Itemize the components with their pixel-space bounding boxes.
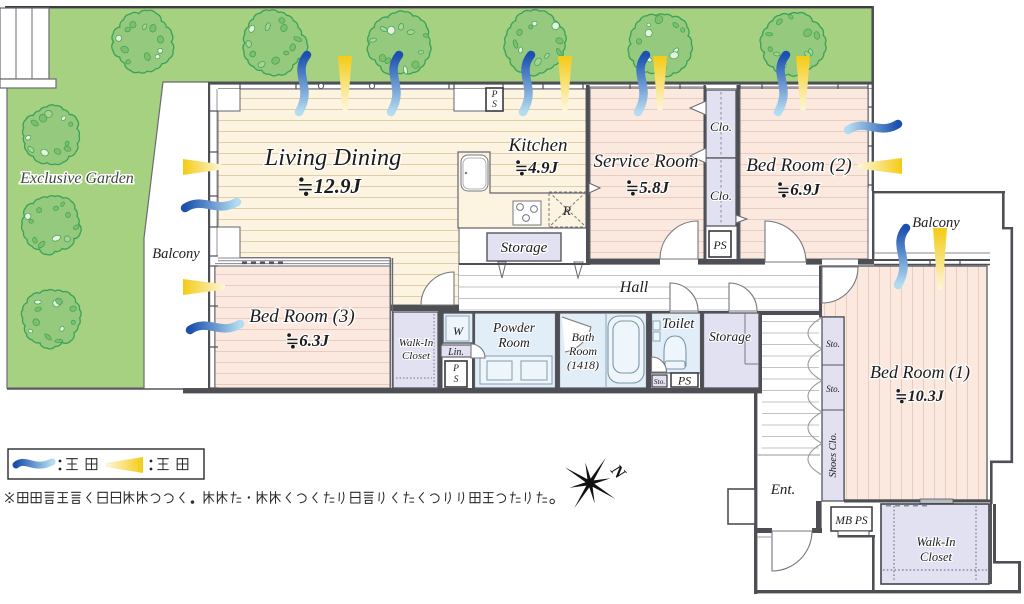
svg-text:Bed Room (3): Bed Room (3)	[249, 306, 355, 327]
svg-text:Service Room: Service Room	[594, 151, 699, 172]
svg-text:Walk-In: Walk-In	[916, 535, 955, 549]
svg-text:Bed Room (1): Bed Room (1)	[870, 362, 970, 383]
svg-text:12.9J: 12.9J	[314, 174, 363, 198]
svg-text:Bath: Bath	[572, 330, 595, 344]
svg-text:Room: Room	[497, 335, 530, 350]
svg-text:MB PS: MB PS	[834, 515, 868, 527]
svg-text:S: S	[454, 375, 459, 385]
svg-text:Toilet: Toilet	[662, 316, 695, 332]
svg-text:10.3J: 10.3J	[908, 388, 945, 405]
svg-text:PS: PS	[677, 374, 691, 388]
svg-text:Closet: Closet	[402, 350, 431, 362]
svg-text:Storage: Storage	[709, 329, 751, 344]
svg-text:6.3J: 6.3J	[299, 331, 329, 350]
svg-text:Bed Room (2): Bed Room (2)	[746, 155, 852, 176]
svg-text:Kitchen: Kitchen	[507, 135, 567, 156]
svg-text:Walk-In: Walk-In	[399, 337, 434, 349]
svg-text:Clo.: Clo.	[710, 119, 732, 134]
svg-text:Balcony: Balcony	[912, 215, 960, 231]
svg-text:Closet: Closet	[920, 550, 952, 564]
svg-text:Storage: Storage	[501, 240, 548, 256]
svg-text:W: W	[453, 324, 464, 338]
svg-text:Sto.: Sto.	[826, 339, 840, 349]
svg-text:Exclusive Garden: Exclusive Garden	[19, 170, 134, 187]
svg-text:P: P	[491, 90, 498, 100]
svg-text:Hall: Hall	[619, 279, 649, 296]
svg-text:PS: PS	[712, 238, 726, 252]
svg-text:Powder: Powder	[492, 320, 536, 335]
svg-text:P: P	[452, 364, 459, 374]
svg-text:Sto.: Sto.	[826, 384, 840, 394]
svg-text:S: S	[492, 100, 497, 110]
svg-text:R: R	[562, 203, 571, 218]
svg-text:(1418): (1418)	[567, 358, 599, 372]
svg-text:Living Dining: Living Dining	[264, 144, 402, 171]
svg-text:Room: Room	[568, 344, 597, 358]
svg-text:5.8J: 5.8J	[639, 178, 669, 197]
svg-text:Clo.: Clo.	[710, 188, 732, 203]
svg-text:Lin.: Lin.	[447, 347, 464, 358]
svg-text:Balcony: Balcony	[152, 246, 200, 262]
svg-text:Shoes Clo.: Shoes Clo.	[828, 433, 839, 478]
svg-text:4.9J: 4.9J	[527, 158, 558, 177]
svg-text:Sto.: Sto.	[654, 377, 666, 386]
svg-text:Ent.: Ent.	[770, 482, 796, 498]
svg-text:6.9J: 6.9J	[790, 180, 820, 199]
